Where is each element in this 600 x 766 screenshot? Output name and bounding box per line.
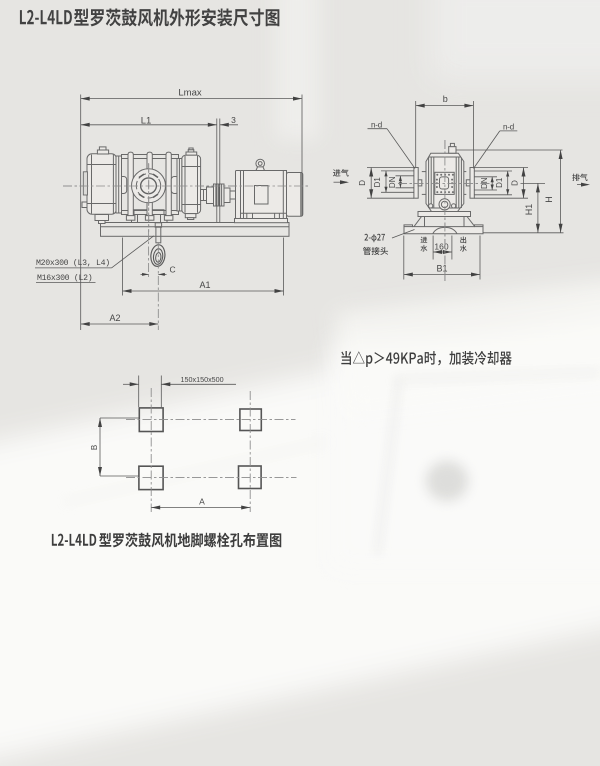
svg-text:n-d: n-d: [503, 122, 514, 131]
svg-text:C: C: [170, 264, 176, 274]
svg-text:Lmax: Lmax: [178, 88, 201, 99]
svg-text:H1: H1: [524, 204, 534, 216]
svg-text:3: 3: [231, 115, 236, 125]
svg-text:150x150x500: 150x150x500: [181, 375, 224, 384]
svg-text:M20x300 (L3, L4): M20x300 (L3, L4): [36, 258, 110, 268]
svg-text:B1: B1: [436, 263, 447, 273]
svg-text:D1: D1: [373, 177, 382, 188]
svg-text:A2: A2: [109, 313, 120, 323]
svg-text:DN: DN: [388, 176, 397, 188]
svg-text:L1: L1: [141, 115, 152, 126]
svg-text:B: B: [90, 445, 99, 450]
svg-text:D: D: [510, 180, 519, 186]
svg-text:A1: A1: [199, 280, 210, 290]
svg-text:160: 160: [434, 241, 448, 251]
svg-text:A: A: [199, 497, 205, 507]
svg-text:n-d: n-d: [371, 120, 382, 129]
svg-text:H: H: [544, 196, 554, 203]
svg-text:D1: D1: [495, 177, 504, 188]
svg-text:D: D: [358, 180, 367, 186]
svg-text:M16x300 (L2): M16x300 (L2): [37, 273, 92, 283]
svg-text:b: b: [443, 94, 448, 104]
